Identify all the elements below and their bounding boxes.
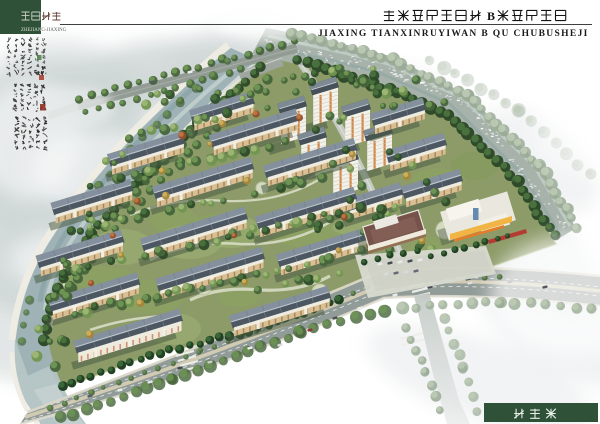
svg-text:B: B (487, 9, 495, 23)
svg-text:JIAXING TIANXINRUYIWAN B QU CH: JIAXING TIANXINRUYIWAN B QU CHUBUSHEJI (318, 29, 589, 39)
